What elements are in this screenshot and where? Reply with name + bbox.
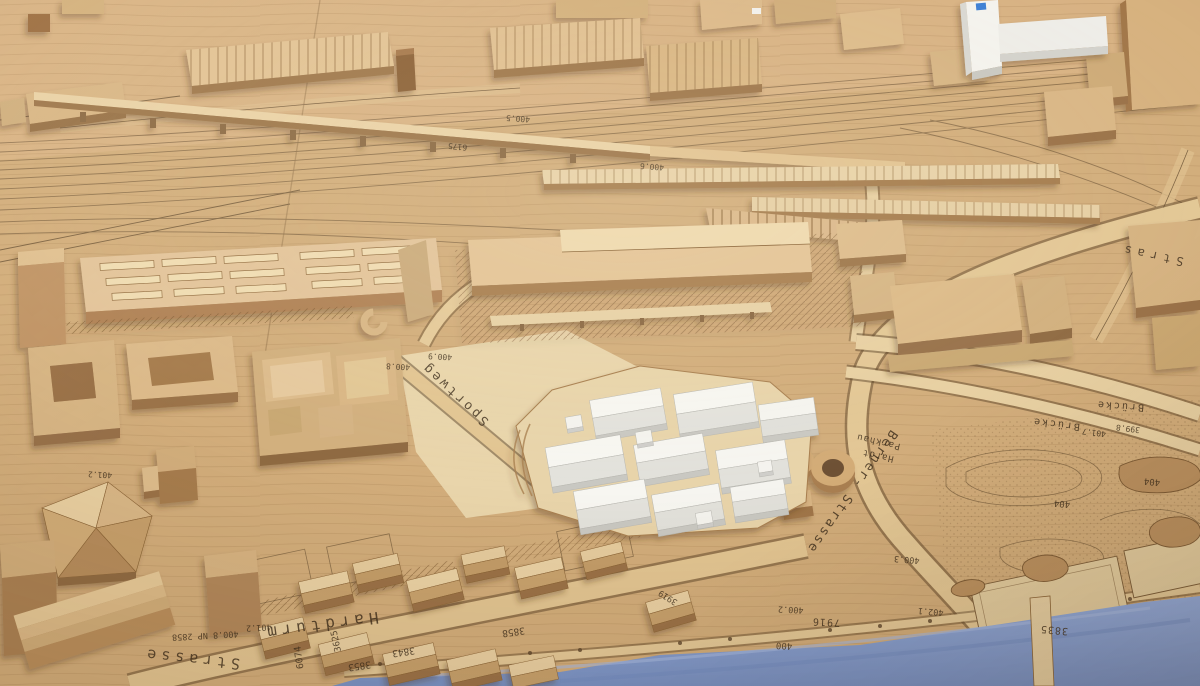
model-photo: Hardturm Strasse Sportweg Berner- Strass…: [0, 0, 1200, 686]
photo-vignette: [0, 0, 1200, 686]
